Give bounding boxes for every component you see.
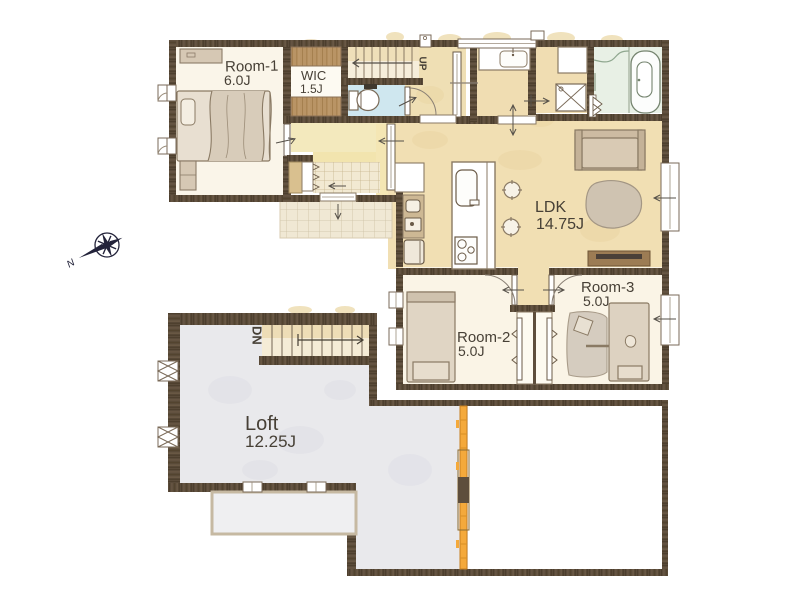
svg-text:5.0J: 5.0J (458, 343, 484, 359)
svg-text:6.0J: 6.0J (224, 72, 250, 88)
svg-text:1.5J: 1.5J (300, 82, 323, 96)
svg-text:12.25J: 12.25J (245, 432, 296, 451)
svg-text:14.75J: 14.75J (536, 216, 584, 233)
svg-text:WIC: WIC (301, 68, 326, 83)
svg-text:DN: DN (250, 326, 265, 345)
svg-text:5.0J: 5.0J (583, 293, 609, 309)
svg-text:LDK: LDK (535, 199, 566, 216)
svg-text:UP: UP (417, 57, 428, 71)
